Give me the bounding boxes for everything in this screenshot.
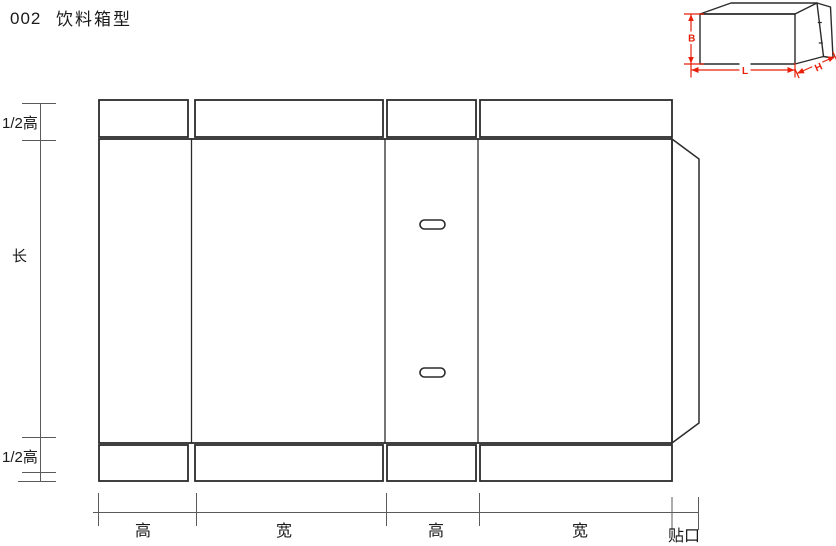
dim-b-label: B bbox=[688, 34, 695, 45]
dim-l-arrow-left bbox=[692, 67, 699, 73]
bottom-dimension-labels: 高 宽 高 宽 贴口 bbox=[135, 522, 700, 545]
dieline-outline bbox=[99, 100, 699, 481]
label-length: 长 bbox=[12, 248, 27, 265]
label-width-2: 宽 bbox=[572, 522, 588, 540]
label-half-height-top: 1/2高 bbox=[2, 115, 38, 132]
dim-b-arrow-up bbox=[688, 15, 694, 22]
dim-h-arrow-right bbox=[828, 57, 836, 63]
bottom-flap-end-1 bbox=[99, 445, 188, 481]
bottom-dimension-lines bbox=[93, 493, 699, 530]
drawing-name: 饮料箱型 bbox=[56, 10, 132, 29]
dim-l-label: L bbox=[742, 66, 748, 77]
left-dimension-labels: 1/2高 长 1/2高 bbox=[2, 115, 38, 466]
left-dimension-lines bbox=[18, 103, 56, 482]
bottom-flap-end-2 bbox=[387, 445, 476, 481]
box-3d-preview bbox=[700, 3, 833, 64]
label-half-height-bottom: 1/2高 bbox=[2, 449, 38, 466]
glue-flap bbox=[672, 139, 699, 443]
dim-h-arrow-left bbox=[797, 68, 805, 74]
slot-hole-top bbox=[420, 220, 445, 229]
bottom-flap-side-2 bbox=[480, 445, 672, 481]
box-3d-dimensions: B L H bbox=[684, 14, 836, 78]
top-flap-side-2 bbox=[480, 100, 672, 137]
label-glue-flap: 贴口 bbox=[668, 527, 700, 545]
dim-l-arrow-right bbox=[788, 67, 795, 73]
top-flap-end-1 bbox=[99, 100, 188, 137]
bottom-flap-side-1 bbox=[195, 445, 383, 481]
dieline-drawing-canvas: 002 饮料箱型 bbox=[0, 0, 836, 546]
box-top-face bbox=[700, 3, 817, 14]
box-open-flap bbox=[817, 3, 833, 58]
dieline-svg: 002 饮料箱型 bbox=[0, 0, 836, 546]
label-width-1: 宽 bbox=[276, 522, 292, 540]
box-front-face bbox=[700, 14, 795, 64]
label-height-1: 高 bbox=[135, 522, 151, 540]
top-flap-side-1 bbox=[195, 100, 383, 137]
slot-hole-bottom bbox=[420, 368, 445, 377]
drawing-number: 002 bbox=[10, 9, 41, 28]
label-height-2: 高 bbox=[428, 522, 444, 540]
top-flap-end-2 bbox=[387, 100, 476, 137]
page-title: 002 饮料箱型 bbox=[10, 9, 132, 29]
dim-b-arrow-down bbox=[688, 57, 694, 64]
